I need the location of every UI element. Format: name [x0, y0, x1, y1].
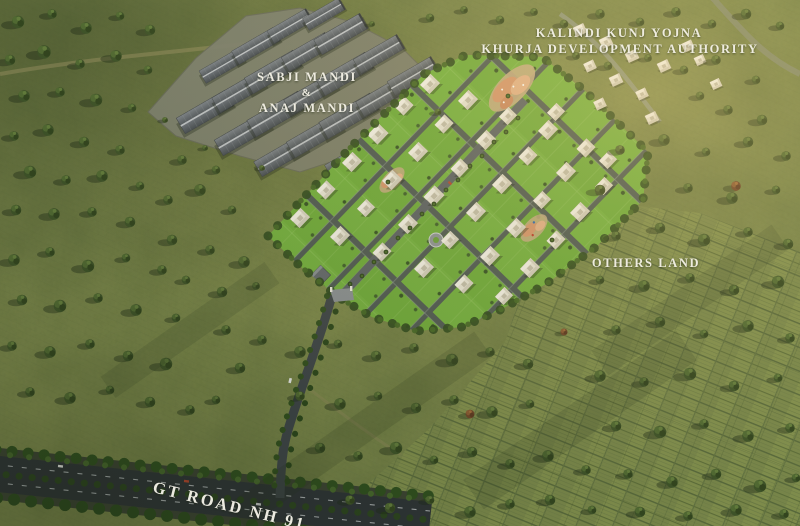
label-others-land: OTHERS LAND: [592, 256, 700, 270]
label-khurja-development-authority: KHURJA DEVELOPMENT AUTHORITY: [481, 42, 758, 56]
aerial-site-render: KALINDI KUNJ YOJNA KHURJA DEVELOPMENT AU…: [0, 0, 800, 526]
label-anaj-mandi: ANAJ MANDI: [259, 101, 355, 115]
label-sabji-mandi: SABJI MANDI: [257, 70, 357, 84]
label-mandi-ampersand: &: [302, 87, 313, 99]
label-kalindi-kunj-yojna: KALINDI KUNJ YOJNA: [536, 26, 703, 40]
